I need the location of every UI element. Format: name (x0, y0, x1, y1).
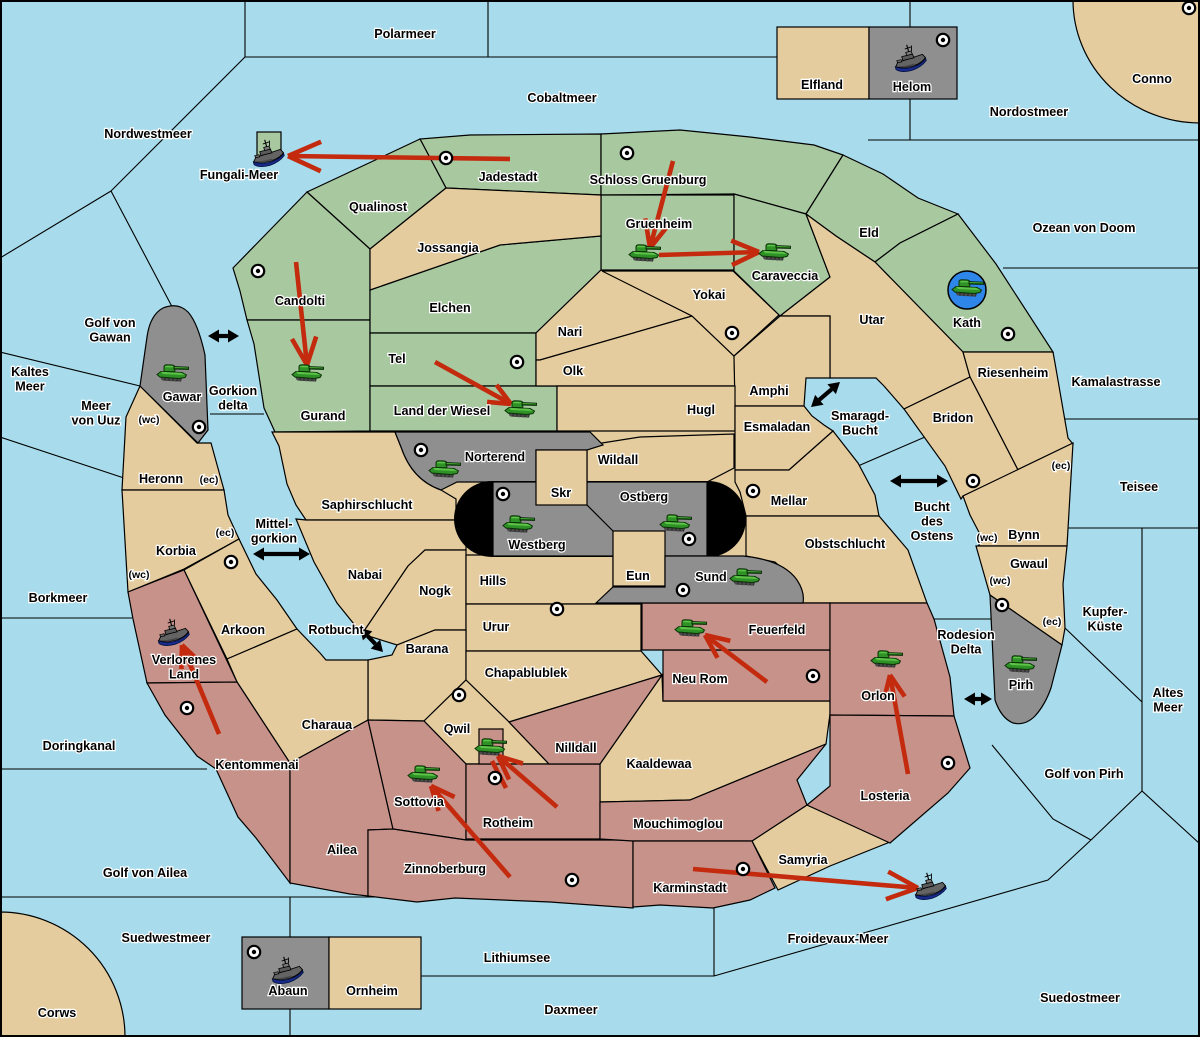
svg-text:Golf von: Golf von (84, 316, 135, 330)
svg-text:Jadestadt: Jadestadt (479, 170, 539, 184)
svg-text:Amphi: Amphi (749, 384, 788, 398)
svg-text:Bucht: Bucht (842, 424, 878, 438)
svg-text:Losteria: Losteria (861, 789, 911, 803)
svg-text:Küste: Küste (1088, 620, 1123, 634)
svg-text:Yokai: Yokai (693, 288, 726, 302)
svg-text:Corws: Corws (38, 1006, 77, 1020)
svg-text:Riesenheim: Riesenheim (978, 366, 1049, 380)
svg-text:Westberg: Westberg (508, 538, 565, 552)
svg-text:Golf von Pirh: Golf von Pirh (1044, 767, 1123, 781)
svg-text:Arkoon: Arkoon (221, 623, 265, 637)
svg-text:(ec): (ec) (200, 474, 219, 486)
svg-text:Gwaul: Gwaul (1010, 557, 1048, 571)
svg-text:Nabai: Nabai (348, 568, 382, 582)
svg-text:Kupfer-: Kupfer- (1083, 605, 1128, 619)
svg-text:Esmaladan: Esmaladan (744, 420, 811, 434)
svg-text:Gorkion: Gorkion (209, 384, 257, 398)
svg-text:Schloss Gruenburg: Schloss Gruenburg (590, 173, 707, 187)
svg-text:Bynn: Bynn (1008, 528, 1039, 542)
svg-text:Kath: Kath (953, 316, 981, 330)
svg-text:von Uuz: von Uuz (72, 414, 121, 428)
svg-text:Obstschlucht: Obstschlucht (805, 537, 886, 551)
svg-text:Bridon: Bridon (933, 411, 974, 425)
svg-text:Feuerfeld: Feuerfeld (749, 623, 806, 637)
svg-text:Suedwestmeer: Suedwestmeer (122, 931, 211, 945)
svg-text:Elfland: Elfland (801, 78, 843, 92)
svg-text:Polarmeer: Polarmeer (374, 27, 436, 41)
svg-text:Fungali-Meer: Fungali-Meer (200, 168, 278, 182)
svg-text:Meer: Meer (1153, 701, 1182, 715)
svg-text:Heronn: Heronn (139, 472, 183, 486)
svg-text:Borkmeer: Borkmeer (29, 591, 88, 605)
svg-text:Zinnoberburg: Zinnoberburg (404, 862, 486, 876)
svg-text:Pirh: Pirh (1009, 678, 1034, 692)
svg-text:Gurand: Gurand (301, 409, 346, 423)
svg-text:Altes: Altes (1153, 686, 1184, 700)
svg-text:Olk: Olk (563, 364, 584, 378)
svg-text:Nari: Nari (558, 325, 583, 339)
svg-text:Hugl: Hugl (687, 403, 715, 417)
svg-text:Gruenheim: Gruenheim (626, 217, 692, 231)
svg-text:(wc): (wc) (977, 532, 998, 544)
svg-text:Saphirschlucht: Saphirschlucht (322, 498, 414, 512)
svg-text:des: des (921, 515, 943, 529)
svg-text:Teisee: Teisee (1120, 480, 1158, 494)
svg-text:Bucht: Bucht (914, 500, 950, 514)
svg-text:Smaragd-: Smaragd- (831, 409, 889, 423)
svg-text:Lithiumsee: Lithiumsee (484, 951, 550, 965)
svg-text:Kaltes: Kaltes (11, 365, 49, 379)
svg-text:Meer: Meer (15, 380, 44, 394)
svg-text:Froidevaux-Meer: Froidevaux-Meer (788, 932, 889, 946)
svg-text:Qwil: Qwil (444, 722, 471, 736)
svg-text:Sottovia: Sottovia (394, 795, 445, 809)
svg-text:Korbia: Korbia (156, 544, 197, 558)
svg-text:Ornheim: Ornheim (346, 984, 398, 998)
svg-text:Land: Land (169, 668, 199, 682)
svg-text:Nordwestmeer: Nordwestmeer (104, 127, 192, 141)
svg-text:(ec): (ec) (1043, 616, 1062, 628)
svg-text:Skr: Skr (551, 486, 571, 500)
svg-text:Caraveccia: Caraveccia (752, 269, 820, 283)
svg-text:(wc): (wc) (139, 414, 160, 426)
svg-text:Orlon: Orlon (861, 689, 895, 703)
svg-text:Mouchimoglou: Mouchimoglou (633, 817, 723, 831)
svg-text:Mittel-: Mittel- (255, 517, 292, 531)
svg-text:Cobaltmeer: Cobaltmeer (527, 91, 596, 105)
svg-text:Neu Rom: Neu Rom (672, 672, 727, 686)
svg-text:Nilldall: Nilldall (555, 741, 596, 755)
svg-text:Mellar: Mellar (771, 494, 807, 508)
svg-text:Doringkanal: Doringkanal (43, 739, 116, 753)
svg-text:Charaua: Charaua (302, 718, 353, 732)
svg-text:Nordostmeer: Nordostmeer (990, 105, 1068, 119)
svg-text:Verlorenes: Verlorenes (152, 653, 216, 667)
svg-text:Conno: Conno (1132, 72, 1172, 86)
svg-text:Ailea: Ailea (327, 843, 358, 857)
svg-text:Karminstadt: Karminstadt (653, 881, 727, 895)
svg-text:Eun: Eun (626, 569, 650, 583)
svg-text:Candolti: Candolti (275, 294, 325, 308)
svg-text:Delta: Delta (951, 643, 983, 657)
svg-text:Hills: Hills (480, 574, 507, 588)
svg-text:(wc): (wc) (129, 569, 150, 581)
svg-text:Kamalastrasse: Kamalastrasse (1072, 375, 1161, 389)
svg-text:Suedostmeer: Suedostmeer (1040, 991, 1120, 1005)
svg-text:Rotbucht: Rotbucht (308, 623, 364, 637)
svg-text:Land der Wiesel: Land der Wiesel (394, 404, 490, 418)
svg-text:(ec): (ec) (216, 527, 235, 539)
svg-text:Gawar: Gawar (163, 390, 202, 404)
svg-text:Abaun: Abaun (268, 984, 307, 998)
svg-text:Ostens: Ostens (911, 529, 954, 543)
svg-text:(wc): (wc) (990, 575, 1011, 587)
svg-text:Samyria: Samyria (778, 853, 828, 867)
svg-text:Chapablublek: Chapablublek (485, 666, 569, 680)
svg-text:Utar: Utar (859, 313, 884, 327)
svg-text:Barana: Barana (406, 642, 450, 656)
svg-text:Tel: Tel (388, 352, 405, 366)
svg-text:Qualinost: Qualinost (349, 200, 408, 214)
svg-text:Helom: Helom (893, 80, 932, 94)
svg-text:Rodesion: Rodesion (937, 628, 994, 642)
svg-text:Jossangia: Jossangia (417, 241, 480, 255)
svg-text:Meer: Meer (81, 399, 110, 413)
svg-text:Nogk: Nogk (419, 584, 451, 598)
svg-text:Ozean von Doom: Ozean von Doom (1033, 221, 1136, 235)
svg-text:delta: delta (218, 399, 248, 413)
svg-text:Rotheim: Rotheim (483, 816, 533, 830)
svg-text:Kaaldewaa: Kaaldewaa (626, 757, 692, 771)
svg-text:Wildall: Wildall (598, 453, 638, 467)
svg-text:Norterend: Norterend (465, 450, 525, 464)
svg-text:Sund: Sund (695, 570, 726, 584)
svg-text:Golf von Ailea: Golf von Ailea (103, 866, 188, 880)
svg-text:Eld: Eld (859, 226, 879, 240)
svg-text:Gawan: Gawan (89, 331, 130, 345)
svg-text:Kentommenai: Kentommenai (215, 758, 298, 772)
svg-text:Elchen: Elchen (429, 301, 470, 315)
svg-text:Urur: Urur (483, 620, 510, 634)
svg-text:gorkion: gorkion (251, 532, 297, 546)
svg-text:(ec): (ec) (1052, 460, 1071, 472)
svg-text:Daxmeer: Daxmeer (544, 1003, 597, 1017)
svg-text:Ostberg: Ostberg (620, 490, 668, 504)
